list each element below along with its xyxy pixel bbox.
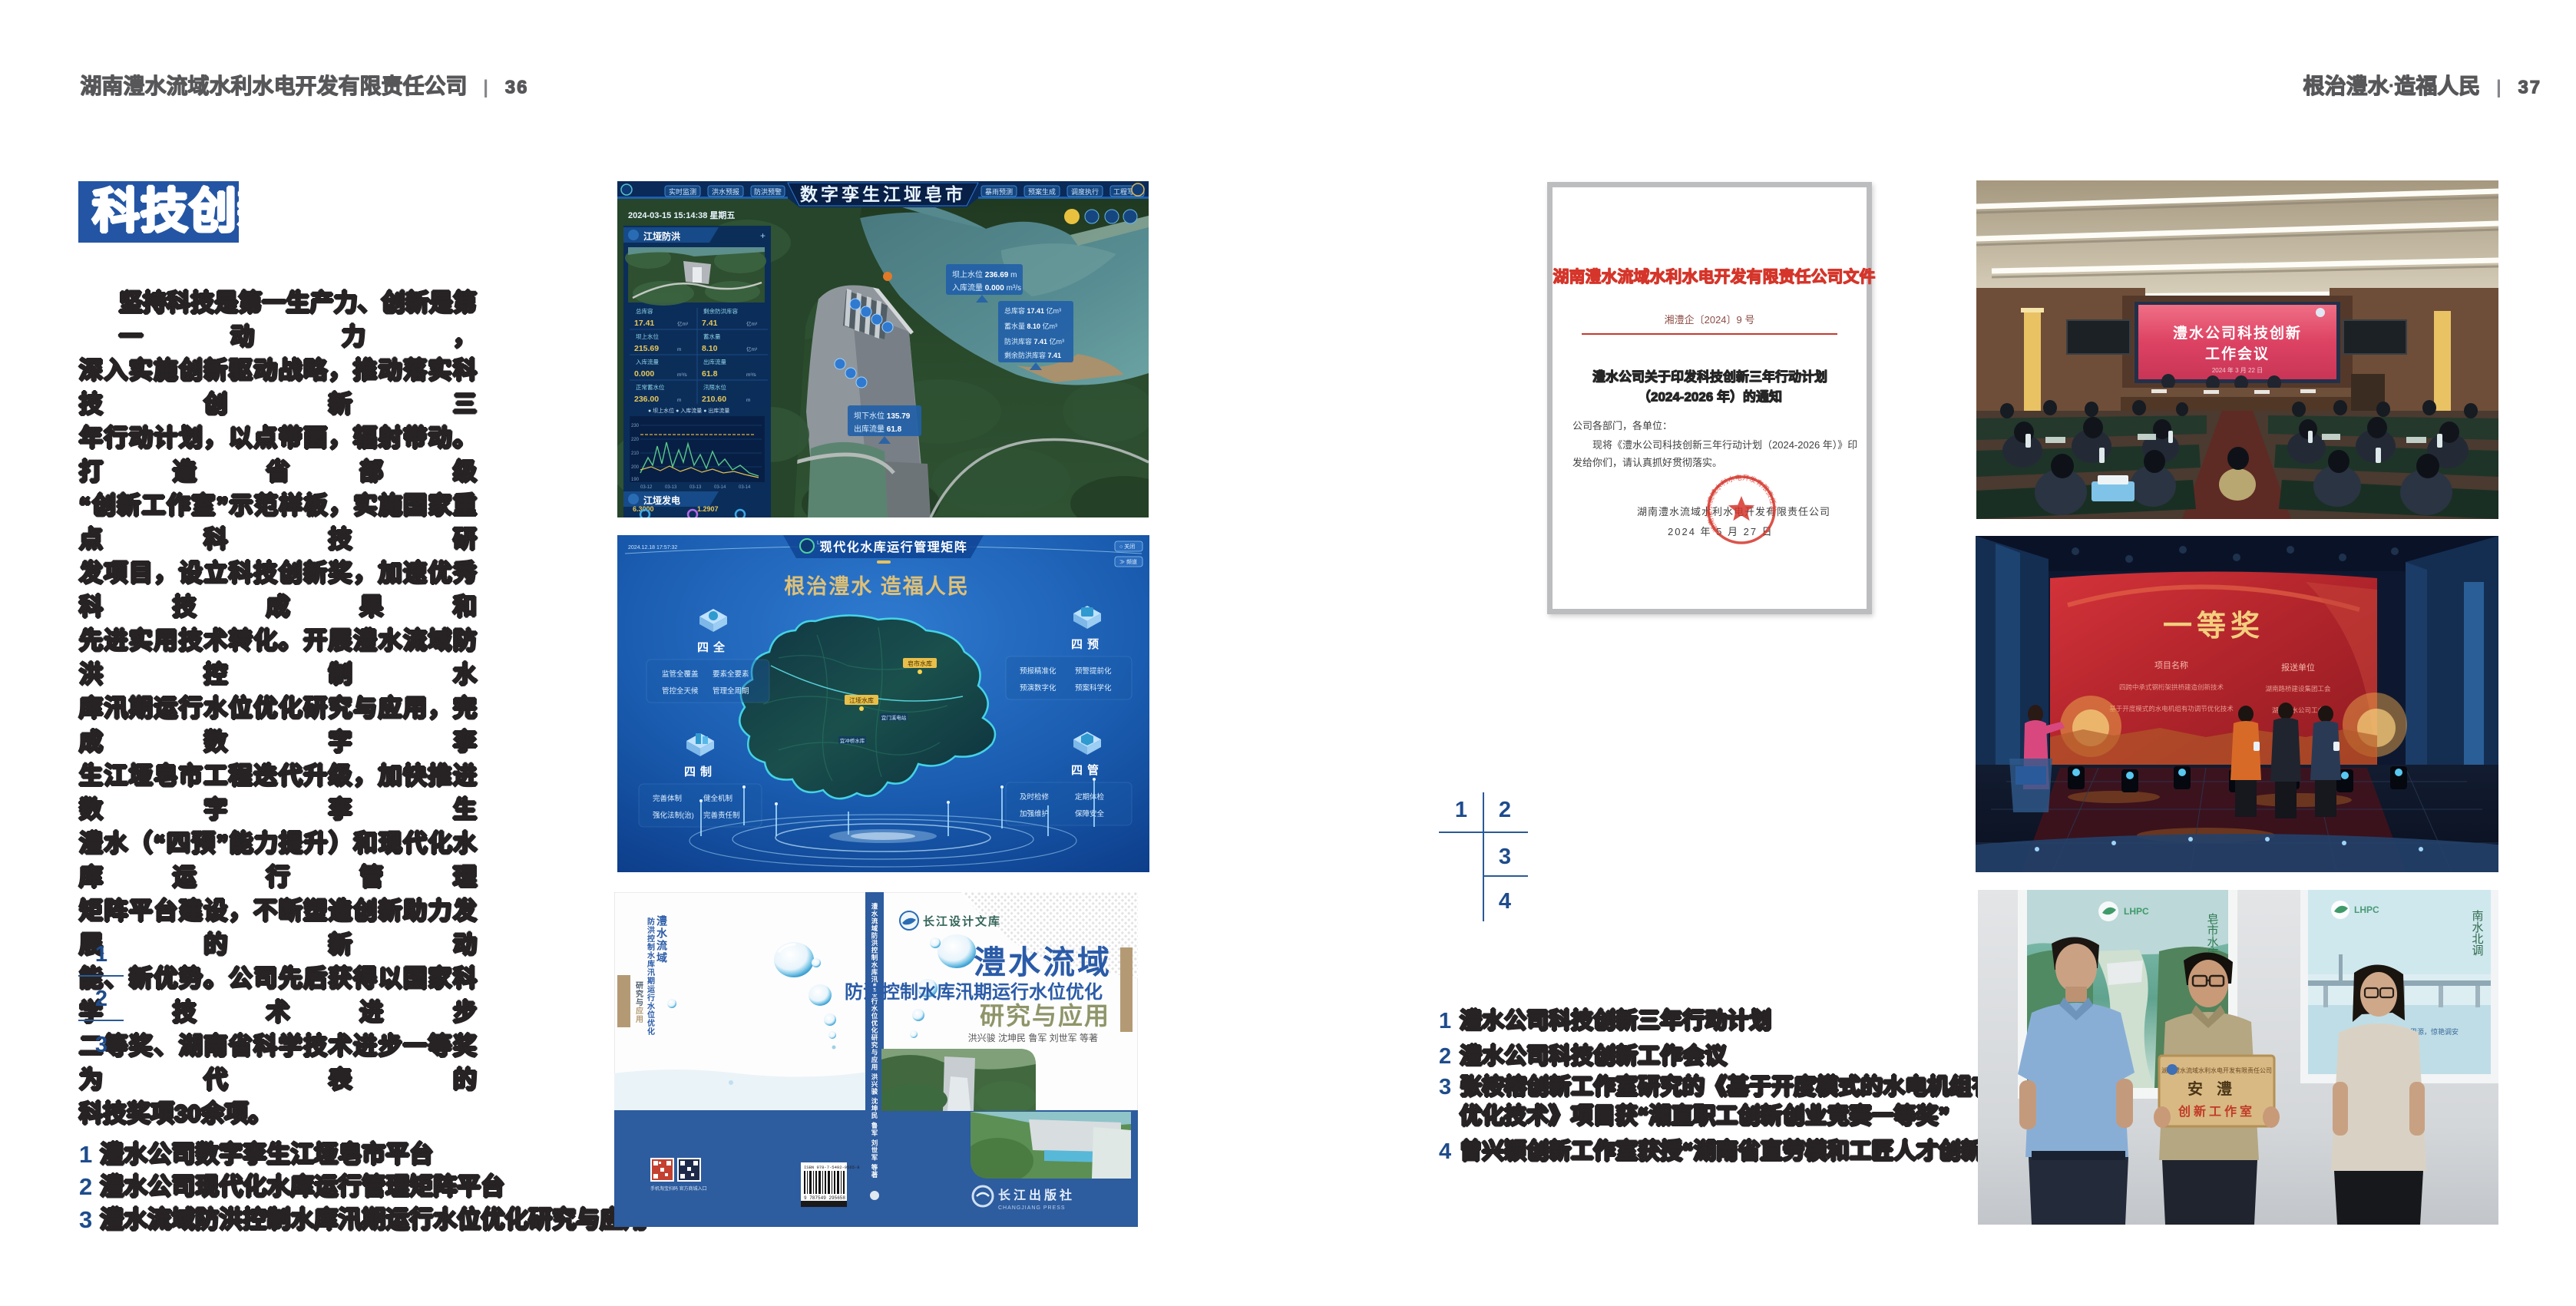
svg-text:防洪预警: 防洪预警 bbox=[754, 187, 782, 196]
svg-text:坝上水位 236.69 m: 坝上水位 236.69 m bbox=[952, 269, 1017, 279]
svg-text:2024.12.18 17:57:32: 2024.12.18 17:57:32 bbox=[628, 545, 677, 551]
svg-text:洪兴骏 沈坤民 鲁军 刘世军 等著: 洪兴骏 沈坤民 鲁军 刘世军 等著 bbox=[968, 1032, 1098, 1043]
svg-text:四预: 四预 bbox=[1071, 638, 1103, 651]
svg-text:根治澧水 造福人民: 根治澧水 造福人民 bbox=[784, 575, 970, 598]
svg-text:管理全周期: 管理全周期 bbox=[713, 686, 749, 696]
svg-text:定期体检: 定期体检 bbox=[1075, 792, 1105, 802]
svg-text:四管: 四管 bbox=[1071, 763, 1103, 777]
svg-text:03-14: 03-14 bbox=[714, 485, 726, 490]
svg-text:61.8: 61.8 bbox=[702, 369, 718, 379]
svg-text:强化法制(治): 强化法制(治) bbox=[653, 811, 694, 820]
svg-text:CHANGJIANG PRESS: CHANGJIANG PRESS bbox=[998, 1205, 1066, 1211]
svg-text:基于开度模式的水电机组有功调节优化技术: 基于开度模式的水电机组有功调节优化技术 bbox=[2109, 705, 2234, 713]
svg-text:≫ 频道: ≫ 频道 bbox=[1119, 558, 1137, 565]
svg-text:6.3000: 6.3000 bbox=[633, 505, 654, 513]
svg-text:LHPC: LHPC bbox=[2124, 906, 2149, 917]
svg-text:ISBN 978-7-5492-9565-8: ISBN 978-7-5492-9565-8 bbox=[804, 1165, 860, 1170]
svg-text:健全机制: 健全机制 bbox=[703, 794, 732, 803]
svg-text:03-13: 03-13 bbox=[665, 485, 677, 490]
svg-text:蓄水量: 蓄水量 bbox=[703, 332, 721, 340]
svg-text:2024 年 3 月 22 日: 2024 年 3 月 22 日 bbox=[2212, 366, 2263, 374]
svg-text:江垭防洪: 江垭防洪 bbox=[643, 230, 680, 242]
svg-text:澧水公司科技创新: 澧水公司科技创新 bbox=[2173, 324, 2302, 342]
svg-text:8.10: 8.10 bbox=[702, 344, 718, 353]
svg-text:实时监测: 实时监测 bbox=[669, 187, 696, 196]
svg-text:1.2907: 1.2907 bbox=[697, 505, 719, 513]
svg-text:宜冲桥水库: 宜冲桥水库 bbox=[840, 737, 865, 744]
svg-text:项目名称: 项目名称 bbox=[2154, 660, 2188, 670]
svg-text:LHPC: LHPC bbox=[2354, 904, 2379, 915]
svg-text:完善体制: 完善体制 bbox=[653, 794, 682, 803]
svg-text:完善责任制: 完善责任制 bbox=[703, 811, 740, 820]
svg-text:蓄水量 8.10 亿m³: 蓄水量 8.10 亿m³ bbox=[1004, 322, 1057, 330]
svg-text:剩余防洪库容 7.41: 剩余防洪库容 7.41 bbox=[1004, 351, 1061, 359]
svg-text:四跨中承式钢桁架拱桥建造创新技术: 四跨中承式钢桁架拱桥建造创新技术 bbox=[2119, 683, 2224, 691]
svg-text:预报精准化: 预报精准化 bbox=[1020, 666, 1057, 676]
svg-text:预演数字化: 预演数字化 bbox=[1020, 683, 1057, 693]
svg-text:03-14: 03-14 bbox=[739, 485, 751, 490]
svg-text:预案生成: 预案生成 bbox=[1028, 187, 1056, 196]
svg-text:安澧: 安澧 bbox=[2187, 1080, 2246, 1098]
svg-text:研究与应用: 研究与应用 bbox=[980, 1002, 1110, 1030]
svg-text:加强维护: 加强维护 bbox=[1020, 809, 1049, 818]
svg-text:报送单位: 报送单位 bbox=[2281, 662, 2315, 673]
svg-text:m³/s: m³/s bbox=[677, 372, 687, 378]
svg-text:预警提前化: 预警提前化 bbox=[1075, 666, 1112, 676]
svg-text:总库容: 总库容 bbox=[636, 307, 653, 315]
svg-text:防洪控制水库汛期运行水位优化: 防洪控制水库汛期运行水位优化 bbox=[845, 981, 1103, 1003]
svg-text:湖南澧水流域水利水电开发有限责任公司: 湖南澧水流域水利水电开发有限责任公司 bbox=[2161, 1066, 2272, 1074]
svg-text:澧水流域: 澧水流域 bbox=[974, 944, 1112, 980]
svg-text:坝下水位 135.79: 坝下水位 135.79 bbox=[854, 411, 911, 421]
svg-text:暴雨预测: 暴雨预测 bbox=[985, 188, 1013, 196]
svg-text:澧水流域防洪控制水库汛期运行水位优化研究与应用 洪兴骏 沈坤: 澧水流域防洪控制水库汛期运行水位优化研究与应用 洪兴骏 沈坤民 鲁军 刘世军 等… bbox=[871, 902, 878, 1178]
svg-text:● 坝上水位 ● 入库流量 ● 出库流量: ● 坝上水位 ● 入库流量 ● 出库流量 bbox=[648, 407, 729, 414]
svg-text:17.41: 17.41 bbox=[634, 319, 654, 328]
svg-text:江垭水库: 江垭水库 bbox=[849, 696, 874, 704]
svg-text:剩余防洪库容: 剩余防洪库容 bbox=[703, 307, 738, 315]
svg-text:江垭发电: 江垭发电 bbox=[643, 494, 680, 506]
svg-text:190: 190 bbox=[631, 478, 640, 482]
svg-text:洪水预报: 洪水预报 bbox=[712, 187, 739, 196]
svg-text:7.41: 7.41 bbox=[702, 319, 718, 328]
svg-text:四制: 四制 bbox=[684, 765, 716, 779]
svg-text:调度执行: 调度执行 bbox=[1071, 187, 1099, 196]
svg-text:澧水流域: 澧水流域 bbox=[656, 914, 668, 964]
svg-text:亿m³: 亿m³ bbox=[746, 346, 758, 352]
svg-text:一等奖: 一等奖 bbox=[2163, 610, 2264, 643]
svg-text:236.00: 236.00 bbox=[634, 395, 659, 404]
svg-text:215.69: 215.69 bbox=[634, 344, 659, 353]
svg-text:总库容 17.41 亿m³: 总库容 17.41 亿m³ bbox=[1004, 306, 1061, 315]
svg-text:汛限水位: 汛限水位 bbox=[703, 383, 726, 391]
svg-text:出库流量 61.8: 出库流量 61.8 bbox=[854, 424, 902, 434]
svg-text:210: 210 bbox=[631, 451, 640, 456]
svg-text:200: 200 bbox=[631, 465, 640, 470]
svg-text:0.000: 0.000 bbox=[634, 369, 654, 379]
svg-text:亿m³: 亿m³ bbox=[677, 320, 689, 327]
svg-text:保障安全: 保障安全 bbox=[1075, 809, 1105, 818]
svg-text:m: m bbox=[677, 347, 681, 352]
svg-text:m³/s: m³/s bbox=[746, 372, 756, 378]
svg-text:要素全要素: 要素全要素 bbox=[713, 670, 749, 679]
svg-text:管控全天候: 管控全天候 bbox=[662, 686, 699, 696]
svg-text:220: 220 bbox=[631, 438, 640, 442]
svg-text:预案科学化: 预案科学化 bbox=[1075, 683, 1112, 693]
svg-text:现代化水库运行管理矩阵: 现代化水库运行管理矩阵 bbox=[820, 540, 968, 554]
svg-text:210.60: 210.60 bbox=[702, 395, 726, 404]
svg-text:入库流量 0.000 m³/s: 入库流量 0.000 m³/s bbox=[952, 283, 1021, 293]
svg-text:出库流量: 出库流量 bbox=[703, 358, 726, 365]
svg-text:03-13: 03-13 bbox=[689, 485, 702, 490]
svg-text:及时检修: 及时检修 bbox=[1020, 792, 1050, 802]
svg-text:9 787549 295658: 9 787549 295658 bbox=[804, 1195, 845, 1201]
svg-text:亿m³: 亿m³ bbox=[746, 320, 758, 327]
svg-text:○ 关闭: ○ 关闭 bbox=[1119, 543, 1135, 550]
svg-text:坝上水位: 坝上水位 bbox=[636, 332, 659, 340]
svg-text:230: 230 bbox=[631, 424, 640, 428]
svg-text:长江出版社: 长江出版社 bbox=[998, 1188, 1075, 1202]
svg-text:03-12: 03-12 bbox=[640, 485, 653, 490]
svg-text:正常蓄水位: 正常蓄水位 bbox=[636, 383, 665, 391]
svg-text:m: m bbox=[746, 398, 750, 403]
svg-text:长江设计文库: 长江设计文库 bbox=[923, 914, 1001, 928]
svg-text:皂市水库: 皂市水库 bbox=[908, 660, 932, 667]
svg-text:湖南路桥建设集团工会: 湖南路桥建设集团工会 bbox=[2265, 685, 2331, 693]
svg-text:宜门溪电站: 宜门溪电站 bbox=[881, 714, 907, 721]
svg-text:数字孪生江垭皂市: 数字孪生江垭皂市 bbox=[800, 184, 966, 204]
svg-text:+: + bbox=[760, 230, 766, 241]
svg-text:手机淘宝扫码 官方商城入口: 手机淘宝扫码 官方商城入口 bbox=[650, 1185, 707, 1192]
svg-text:四全: 四全 bbox=[697, 640, 729, 654]
svg-text:皂市水库: 皂市水库 bbox=[2206, 913, 2219, 959]
svg-text:工作会议: 工作会议 bbox=[2205, 345, 2270, 362]
svg-text:创新工作室: 创新工作室 bbox=[2178, 1104, 2255, 1119]
svg-text:防洪库容 7.41 亿m³: 防洪库容 7.41 亿m³ bbox=[1004, 337, 1064, 346]
svg-text:南水北调: 南水北调 bbox=[2471, 910, 2484, 957]
svg-text:m: m bbox=[677, 398, 681, 403]
svg-text:入库流量: 入库流量 bbox=[636, 358, 659, 365]
svg-text:2024-03-15 15:14:38 星期五: 2024-03-15 15:14:38 星期五 bbox=[628, 210, 735, 220]
svg-text:监管全覆盖: 监管全覆盖 bbox=[662, 670, 699, 679]
